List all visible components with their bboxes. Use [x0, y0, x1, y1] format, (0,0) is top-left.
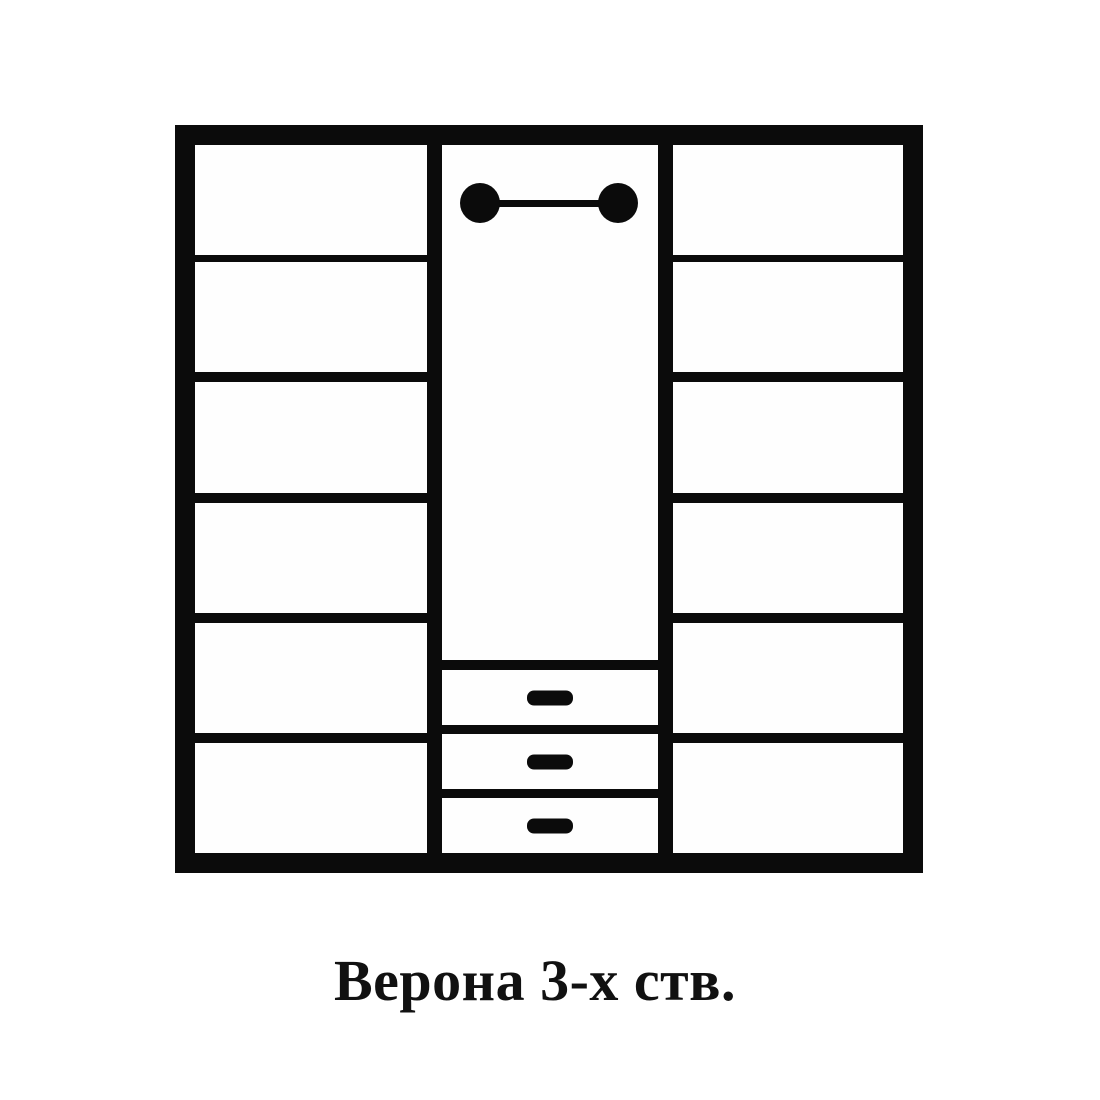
drawer: [442, 660, 658, 725]
shelf-cell: [673, 623, 903, 733]
middle-section: [442, 145, 658, 853]
diagram-caption: Верона 3-х ств.: [0, 946, 1070, 1016]
shelf-cell: [673, 382, 903, 492]
shelf-divider: [673, 372, 903, 382]
drawer: [442, 725, 658, 789]
shelf-cell: [673, 262, 903, 372]
drawer: [442, 789, 658, 853]
shelf-divider: [195, 255, 427, 262]
column-divider-right: [658, 145, 673, 853]
left-shelf-column: [195, 145, 427, 853]
shelf-cell: [673, 503, 903, 613]
shelf-cell: [195, 382, 427, 492]
shelf-divider: [673, 493, 903, 503]
shelf-cell: [195, 623, 427, 733]
shelf-divider: [195, 613, 427, 623]
shelf-divider: [195, 493, 427, 503]
shelf-divider: [673, 255, 903, 262]
drawer-handle-icon: [527, 690, 573, 705]
shelf-cell: [673, 145, 903, 255]
shelf-divider: [673, 613, 903, 623]
shelf-cell: [195, 145, 427, 255]
column-divider-left: [427, 145, 442, 853]
right-shelf-column: [673, 145, 903, 853]
shelf-cell: [195, 262, 427, 372]
hanging-compartment: [442, 145, 658, 660]
drawer-handle-icon: [527, 754, 573, 769]
shelf-cell: [195, 743, 427, 853]
wardrobe-frame: [175, 125, 923, 873]
shelf-divider: [195, 372, 427, 382]
shelf-cell: [673, 743, 903, 853]
clothes-rail-end-right: [598, 183, 638, 223]
shelf-cell: [195, 503, 427, 613]
clothes-rail-end-left: [460, 183, 500, 223]
shelf-divider: [673, 733, 903, 743]
product-schematic-image: Верона 3-х ств.: [0, 0, 1100, 1100]
shelf-divider: [195, 733, 427, 743]
drawer-handle-icon: [527, 818, 573, 833]
